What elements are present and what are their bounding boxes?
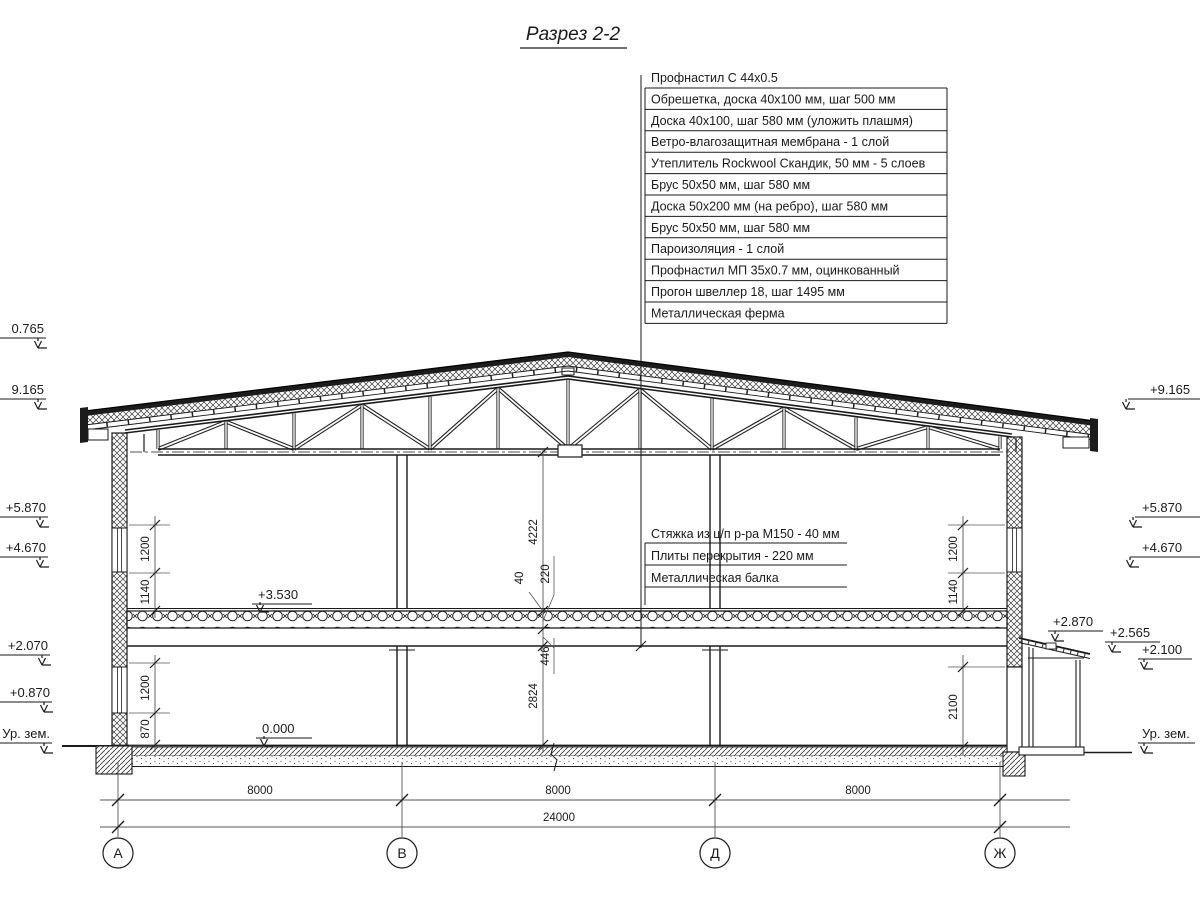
- ground-floor: [62, 743, 1132, 776]
- dim-label: 2824: [528, 683, 540, 709]
- elevation-label: +4.670: [1142, 540, 1182, 555]
- right-wall-window: [1007, 528, 1022, 572]
- span-dim-label: 8000: [545, 785, 571, 797]
- elevation-label: +3.530: [258, 587, 298, 602]
- center-dimension-chain: 4222 40 220 446 2824: [514, 447, 554, 752]
- dim-label: 220: [540, 564, 552, 583]
- elevation-label: +5.870: [6, 500, 46, 515]
- axis-bubbles: А В Д Ж: [103, 838, 1015, 868]
- axis-bubble-label: А: [113, 845, 123, 861]
- roof-callout-label: Металлическая ферма: [651, 306, 785, 320]
- roof-callout-label: Прогон швеллер 18, шаг 1495 мм: [651, 285, 845, 299]
- floor-callout-label: Стяжка из ц/п р-ра М150 - 40 мм: [651, 527, 840, 541]
- dim-label: 2100: [948, 694, 960, 720]
- elevation-label: +5.870: [1142, 500, 1182, 515]
- ground-level-label: Ур. зем.: [2, 726, 50, 741]
- elevation-label: 9.165: [11, 382, 44, 397]
- dim-label: 1200: [140, 675, 152, 701]
- dim-label: 1200: [140, 536, 152, 562]
- columns: [397, 455, 720, 746]
- section-drawing: Разрез 2-2: [0, 0, 1200, 900]
- walls: [112, 433, 1022, 755]
- roof-callout-label: Обрешетка, доска 40х100 мм, шаг 500 мм: [651, 92, 896, 106]
- roof-callout-label: Ветро-влагозащитная мембрана - 1 слой: [651, 135, 889, 149]
- floor-callout-table: Стяжка из ц/п р-ра М150 - 40 мм Плиты пе…: [645, 527, 847, 605]
- elevation-label: +4.670: [6, 540, 46, 555]
- roof-build-up: [80, 352, 1098, 452]
- roof-callout-table: Профнастил С 44х0.5 Обрешетка, доска 40х…: [636, 71, 947, 651]
- dim-label: 40: [514, 572, 526, 585]
- elevation-label: +0.870: [10, 685, 50, 700]
- dim-label: 1200: [948, 536, 960, 562]
- roof-callout-label: Утеплитель Rockwool Скандик, 50 мм - 5 с…: [651, 157, 926, 171]
- dim-label: 446: [540, 646, 552, 665]
- elevation-label: +9.165: [1150, 382, 1190, 397]
- truss-gusset: [558, 445, 582, 457]
- annex: [1019, 638, 1090, 755]
- floor-callout-label: Металлическая балка: [651, 571, 779, 585]
- roof-callout-label: Доска 40х100, шаг 580 мм (уложить плашмя…: [651, 114, 913, 128]
- elevation-label: +2.100: [1142, 642, 1182, 657]
- left-wall-window-upper: [112, 528, 127, 572]
- roof-callout-label: Брус 50х50 мм, шаг 580 мм: [651, 221, 810, 235]
- elevation-label: 0.000: [262, 721, 295, 736]
- dim-label: 4222: [528, 519, 540, 545]
- span-dim-label: 8000: [247, 785, 273, 797]
- span-dim-label: 8000: [845, 785, 871, 797]
- dim-label: 1140: [948, 580, 960, 605]
- section-drawing-sheet: Разрез 2-2: [0, 0, 1200, 900]
- right-dimension-chain: 1200 1140 2100: [948, 516, 1005, 755]
- axis-bubble-label: Д: [710, 845, 720, 861]
- roof-callout-label: Доска 50х200 мм (на ребро), шаг 580 мм: [651, 199, 888, 213]
- roof-callout-label: Профнастил С 44х0.5: [651, 71, 778, 85]
- left-foundation: [96, 746, 132, 774]
- right-foundation: [1003, 752, 1025, 776]
- left-eave-fascia: [80, 407, 88, 443]
- left-wall-window-lower: [112, 667, 127, 713]
- elevation-label: +2.870: [1053, 614, 1093, 629]
- elevation-label: 0.765: [11, 321, 44, 336]
- left-dimension-chain: 1200 1140 1200 870: [129, 516, 170, 752]
- ground-level-label: Ур. зем.: [1142, 726, 1190, 741]
- floor-slab: [127, 609, 1007, 651]
- axis-bubble-label: В: [397, 845, 406, 861]
- page-title: Разрез 2-2: [526, 24, 621, 45]
- dim-label: 1140: [140, 580, 152, 605]
- roof-callout-label: Пароизоляция - 1 слой: [651, 242, 784, 256]
- floor-callout-label: Плиты перекрытия - 220 мм: [651, 549, 814, 563]
- elevation-label: +2.565: [1110, 625, 1150, 640]
- right-eave-fascia: [1090, 418, 1098, 452]
- elevation-label: +2.070: [8, 638, 48, 653]
- drawing-title: Разрез 2-2: [520, 24, 627, 48]
- axis-bubble-label: Ж: [994, 845, 1007, 861]
- dim-label: 870: [140, 719, 152, 738]
- roof-callout-label: Профнастил МП 35х0.7 мм, оцинкованный: [651, 264, 900, 278]
- bottom-dimensions: 8000 8000 8000 24000: [100, 762, 1070, 837]
- total-dim-label: 24000: [543, 812, 575, 824]
- roof-callout-label: Брус 50х50 мм, шаг 580 мм: [651, 178, 810, 192]
- elevation-marks-left: 0.765 9.165 +5.870 +4.670 +2.070 +0.870 …: [0, 321, 53, 753]
